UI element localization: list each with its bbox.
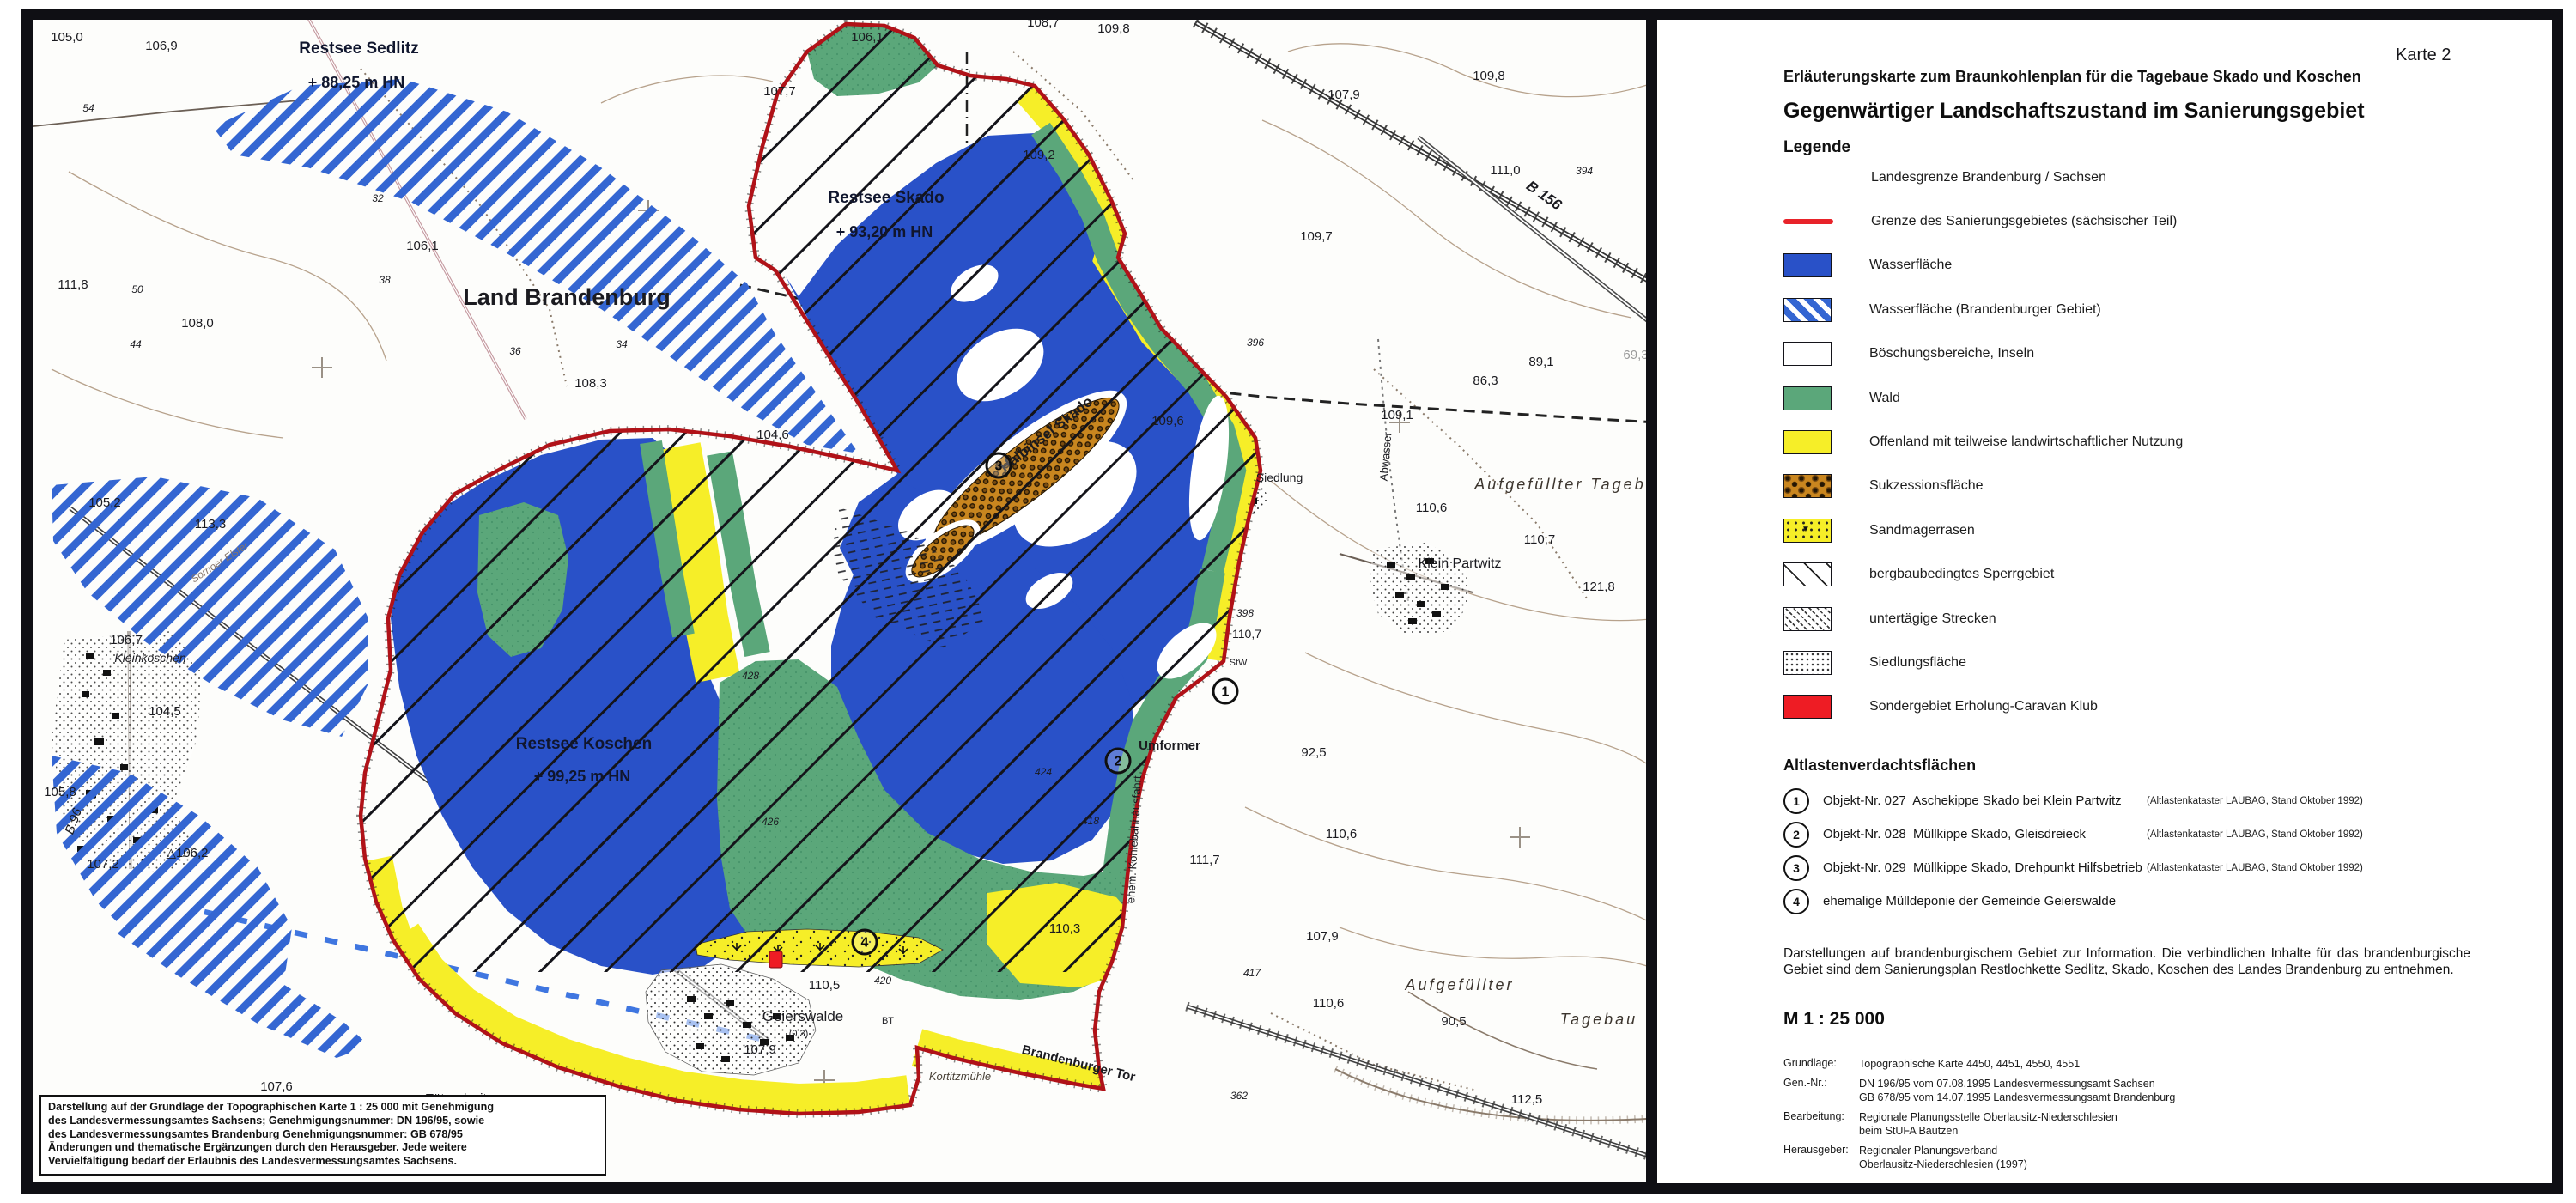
legend-items: Landesgrenze Brandenburg / SachsenGrenze… bbox=[1783, 155, 2522, 729]
legend-item-offenland: Offenland mit teilweise landwirtschaftli… bbox=[1783, 420, 2522, 464]
disclaimer-line: Änderungen und thematische Ergänzungen d… bbox=[48, 1141, 598, 1155]
altlasten-entry-3: 3Objekt-Nr. 029 Müllkippe Skado, Drehpun… bbox=[1783, 851, 2539, 884]
altlasten-entry-text: ehemalige Mülldeponie der Gemeinde Geier… bbox=[1823, 894, 2116, 908]
map-label: Umformer bbox=[1139, 738, 1200, 753]
info-paragraph: Darstellungen auf brandenburgischem Gebi… bbox=[1783, 945, 2470, 978]
map-label: 104,6 bbox=[756, 428, 789, 442]
legend-item-label: Sondergebiet Erholung-Caravan Klub bbox=[1869, 699, 2098, 714]
offenland-swatch-icon bbox=[1783, 430, 1832, 454]
credit-label: Herausgeber: bbox=[1783, 1144, 1859, 1171]
map-label: 108,0 bbox=[181, 316, 214, 331]
map-label: 107,9 bbox=[1306, 929, 1339, 944]
map-label: 107,2 bbox=[87, 857, 119, 872]
map-label: 36 bbox=[509, 345, 521, 357]
svg-text:3: 3 bbox=[995, 459, 1003, 474]
sanierungsgrenze-swatch-icon bbox=[1783, 219, 1833, 224]
legend-item-landesgrenze: Landesgrenze Brandenburg / Sachsen bbox=[1783, 155, 2522, 199]
map-label: Restsee Koschen bbox=[516, 735, 652, 753]
credit-row: Grundlage:Topographische Karte 4450, 445… bbox=[1783, 1057, 2436, 1071]
map-label: 108,7 bbox=[1027, 20, 1060, 30]
wasserflaeche-swatch-icon bbox=[1783, 253, 1832, 277]
map-label: 109,8 bbox=[1097, 21, 1130, 36]
map-label: 50 bbox=[131, 283, 143, 295]
map-label: 106,9 bbox=[145, 39, 178, 53]
map-label: 106,1 bbox=[406, 239, 439, 253]
altlasten-heading: Altlastenverdachtsflächen bbox=[1783, 756, 1976, 775]
map-label: 424 bbox=[1035, 766, 1052, 778]
credit-value: DN 196/95 vom 07.08.1995 Landesvermessun… bbox=[1859, 1077, 2175, 1104]
credit-value: Topographische Karte 4450, 4451, 4550, 4… bbox=[1859, 1057, 2080, 1071]
legend-item-label: Sandmagerrasen bbox=[1869, 523, 1975, 538]
legend-item-label: Grenze des Sanierungsgebietes (sächsisch… bbox=[1871, 214, 2177, 229]
map-label: 90,5 bbox=[1441, 1014, 1466, 1029]
credit-label: Bearbeitung: bbox=[1783, 1110, 1859, 1138]
map-label: 105,0 bbox=[51, 30, 83, 45]
legend-item-siedlung: Siedlungsfläche bbox=[1783, 641, 2522, 684]
map-label: 109,2 bbox=[1023, 148, 1055, 162]
altlasten-entry-text: Objekt-Nr. 027 Aschekippe Skado bei Klei… bbox=[1823, 793, 2122, 808]
map-label: 105,8 bbox=[44, 785, 76, 799]
legend-item-label: Offenland mit teilweise landwirtschaftli… bbox=[1869, 434, 2183, 450]
map-label: 111,8 bbox=[58, 277, 88, 292]
map-label: 426 bbox=[762, 816, 779, 828]
legend-item-label: Siedlungsfläche bbox=[1869, 655, 1966, 671]
map-label: 110,6 bbox=[1416, 501, 1447, 515]
map-label: 398 bbox=[1236, 607, 1254, 619]
map-label: + 93,20 m HN bbox=[836, 223, 933, 240]
credit-label: Grundlage: bbox=[1783, 1057, 1859, 1071]
disclaimer-line: Darstellung auf der Grundlage der Topogr… bbox=[48, 1101, 598, 1115]
credit-value: Regionaler PlanungsverbandOberlausitz-Ni… bbox=[1859, 1144, 2027, 1171]
svg-text:4: 4 bbox=[861, 936, 869, 951]
sperrgebiet-swatch-icon bbox=[1783, 562, 1832, 586]
map-label: 111,0 bbox=[1490, 163, 1520, 178]
map-label: 108,3 bbox=[574, 376, 607, 391]
altlasten-entry-2: 2Objekt-Nr. 028 Müllkippe Skado, Gleisdr… bbox=[1783, 817, 2539, 851]
map-label: Kleinkoschen bbox=[114, 651, 185, 665]
altlasten-entry-note: (Altlastenkataster LAUBAG, Stand Oktober… bbox=[2147, 863, 2363, 873]
map-label: + 99,25 m HN bbox=[534, 768, 631, 785]
map-label: 32 bbox=[372, 192, 384, 204]
map-label: 34 bbox=[616, 338, 628, 350]
map-label: 106,1 bbox=[851, 30, 884, 45]
map-label: 110,7 bbox=[1232, 627, 1261, 641]
sondergebiet-swatch-icon bbox=[1783, 695, 1832, 719]
altlasten-entry-4: 4ehemalige Mülldeponie der Gemeinde Geie… bbox=[1783, 884, 2539, 918]
map-label: + 88,25 m HN bbox=[308, 74, 405, 91]
legend-item-sondergebiet: Sondergebiet Erholung-Caravan Klub bbox=[1783, 685, 2522, 729]
untertaegig-swatch-icon bbox=[1783, 607, 1832, 631]
credit-row: Gen.-Nr.:DN 196/95 vom 07.08.1995 Landes… bbox=[1783, 1077, 2436, 1104]
map-disclaimer-box: Darstellung auf der Grundlage der Topogr… bbox=[39, 1095, 606, 1176]
map-label: 394 bbox=[1576, 165, 1593, 177]
legend-item-label: Sukzessionsfläche bbox=[1869, 478, 1984, 494]
legende-heading: Legende bbox=[1783, 138, 1850, 157]
map-label: 111,7 bbox=[1189, 853, 1219, 867]
map-label: 107,7 bbox=[763, 84, 796, 99]
legend-item-label: bergbaubedingtes Sperrgebiet bbox=[1869, 567, 2054, 582]
legend-item-sukzession: Sukzessionsfläche bbox=[1783, 465, 2522, 508]
map-label: 109,1 bbox=[1381, 408, 1413, 422]
map-label: 86,3 bbox=[1473, 374, 1498, 388]
svg-text:1: 1 bbox=[1222, 685, 1230, 700]
map-label: 107,9 bbox=[1327, 88, 1360, 102]
credit-row: Bearbeitung:Regionale Planungsstelle Obe… bbox=[1783, 1110, 2436, 1138]
map-label: 104,5 bbox=[149, 704, 181, 719]
boeschung-swatch-icon bbox=[1783, 342, 1832, 366]
altlasten-marker-1: 1 bbox=[1213, 679, 1237, 703]
map-label: 396 bbox=[1247, 337, 1264, 349]
wasserflaeche-bb-swatch-icon bbox=[1783, 298, 1832, 322]
disclaimer-line: des Landesvermessungsamtes Sachsens; Gen… bbox=[48, 1115, 598, 1128]
map-label: 362 bbox=[1230, 1090, 1248, 1102]
map-label: 38 bbox=[379, 274, 391, 286]
map-label: 428 bbox=[742, 670, 759, 682]
map-label: 54 bbox=[82, 102, 94, 114]
credits-block: Grundlage:Topographische Karte 4450, 445… bbox=[1783, 1057, 2436, 1177]
map-label: Land Brandenburg bbox=[463, 284, 671, 310]
map-label: 106,7 bbox=[110, 633, 143, 647]
map-title: Gegenwärtiger Landschaftszustand im Sani… bbox=[1783, 99, 2365, 124]
disclaimer-line: Vervielfältigung bedarf der Erlaubnis de… bbox=[48, 1155, 598, 1169]
svg-text:2: 2 bbox=[1115, 755, 1122, 769]
map-label: Kortitzmühle bbox=[929, 1070, 991, 1083]
legend-item-wasserflaeche-bb: Wasserfläche (Brandenburger Gebiet) bbox=[1783, 288, 2522, 331]
map-label: Restsee Skado bbox=[828, 189, 944, 207]
legend-item-wald: Wald bbox=[1783, 376, 2522, 420]
map-label: StW bbox=[1230, 658, 1248, 668]
altlasten-entries: 1Objekt-Nr. 027 Aschekippe Skado bei Kle… bbox=[1783, 784, 2539, 918]
map-label: 110,7 bbox=[1524, 532, 1555, 547]
altlasten-marker-2: 2 bbox=[1106, 749, 1130, 773]
map-canvas: Restsee Sedlitz+ 88,25 m HN105,0106,9541… bbox=[33, 20, 1646, 1182]
credit-label: Gen.-Nr.: bbox=[1783, 1077, 1859, 1104]
altlasten-number-badge: 2 bbox=[1783, 822, 1809, 848]
map-label: Aufgefüllter bbox=[1404, 976, 1514, 993]
map-scale: M 1 : 25 000 bbox=[1783, 1009, 1885, 1030]
credit-row: Herausgeber:Regionaler PlanungsverbandOb… bbox=[1783, 1144, 2436, 1171]
legend-item-untertaegig: untertägige Strecken bbox=[1783, 597, 2522, 641]
map-label: 107,9 bbox=[744, 1042, 776, 1057]
legend-item-label: Böschungsbereiche, Inseln bbox=[1869, 346, 2034, 362]
map-label: 110,6 bbox=[1313, 996, 1344, 1011]
legend-item-label: Landesgrenze Brandenburg / Sachsen bbox=[1871, 170, 2106, 185]
legend-item-boeschung: Böschungsbereiche, Inseln bbox=[1783, 332, 2522, 376]
map-panel: Restsee Sedlitz+ 88,25 m HN105,0106,9541… bbox=[33, 20, 1646, 1182]
map-label: BT bbox=[882, 1016, 894, 1026]
altlasten-entry-text: Objekt-Nr. 028 Müllkippe Skado, Gleisdre… bbox=[1823, 827, 2086, 841]
map-label: 105,2 bbox=[88, 495, 121, 510]
map-label: 109,6 bbox=[1151, 414, 1184, 428]
sukzession-swatch-icon bbox=[1783, 474, 1832, 498]
map-label: Siedlung bbox=[1256, 471, 1303, 484]
map-label: Geierswalde bbox=[762, 1008, 844, 1024]
disclaimer-line: des Landesvermessungsamtes Brandenburg G… bbox=[48, 1128, 598, 1142]
map-label: Tagebau bbox=[1560, 1011, 1637, 1028]
map-label: Aufgefüllter Tagebau bbox=[1473, 476, 1646, 493]
altlasten-number-badge: 1 bbox=[1783, 788, 1809, 814]
map-label: 417 bbox=[1243, 967, 1261, 979]
altlasten-marker-3: 3 bbox=[987, 453, 1011, 477]
legend-item-sperrgebiet: bergbaubedingtes Sperrgebiet bbox=[1783, 553, 2522, 597]
map-label: 109,7 bbox=[1300, 229, 1333, 244]
map-label: 44 bbox=[130, 338, 142, 350]
map-label: △106,2 bbox=[166, 846, 208, 860]
map-label: 110,6 bbox=[1326, 827, 1357, 841]
altlasten-marker-4: 4 bbox=[853, 930, 877, 954]
map-label: 110,5 bbox=[809, 978, 840, 993]
altlasten-entry-text: Objekt-Nr. 029 Müllkippe Skado, Drehpunk… bbox=[1823, 860, 2142, 875]
legend-item-wasserflaeche: Wasserfläche bbox=[1783, 244, 2522, 288]
map-label: 420 bbox=[874, 975, 891, 987]
legend-item-label: Wasserfläche (Brandenburger Gebiet) bbox=[1869, 302, 2101, 318]
wald-swatch-icon bbox=[1783, 386, 1832, 410]
map-label: 109,8 bbox=[1473, 69, 1505, 83]
altlasten-entry-note: (Altlastenkataster LAUBAG, Stand Oktober… bbox=[2147, 829, 2363, 840]
map-label: (0.3) bbox=[789, 1029, 809, 1039]
legend-item-label: untertägige Strecken bbox=[1869, 611, 1996, 627]
map-label: 113,3 bbox=[195, 517, 226, 532]
map-label: 418 bbox=[1082, 815, 1099, 827]
map-label: 89,1 bbox=[1528, 355, 1553, 369]
map-label: 121,8 bbox=[1583, 580, 1615, 594]
map-label: 110,3 bbox=[1049, 921, 1080, 936]
legend-item-label: Wasserfläche bbox=[1869, 258, 1952, 273]
map-sheet: Restsee Sedlitz+ 88,25 m HN105,0106,9541… bbox=[21, 9, 2563, 1194]
legend-item-sanierungsgrenze: Grenze des Sanierungsgebietes (sächsisch… bbox=[1783, 199, 2522, 243]
map-subtitle: Erläuterungskarte zum Braunkohlenplan fü… bbox=[1783, 68, 2361, 86]
legend-panel: Karte 2 Erläuterungskarte zum Braunkohle… bbox=[1657, 20, 2552, 1183]
map-label: Klein Partwitz bbox=[1419, 556, 1502, 571]
altlasten-number-badge: 3 bbox=[1783, 855, 1809, 881]
map-label: 107,6 bbox=[260, 1079, 293, 1094]
credit-value: Regionale Planungsstelle Oberlausitz-Nie… bbox=[1859, 1110, 2117, 1138]
altlasten-entry-1: 1Objekt-Nr. 027 Aschekippe Skado bei Kle… bbox=[1783, 784, 2539, 817]
map-label: Restsee Sedlitz bbox=[299, 39, 418, 58]
legend-item-sandmagerrasen: Sandmagerrasen bbox=[1783, 508, 2522, 552]
sandmagerrasen-swatch-icon bbox=[1783, 519, 1832, 543]
legend-item-label: Wald bbox=[1869, 391, 1900, 406]
map-label: 69,3 bbox=[1623, 348, 1646, 362]
map-label: 112,5 bbox=[1511, 1092, 1542, 1107]
karte-number: Karte 2 bbox=[2396, 46, 2451, 65]
siedlung-swatch-icon bbox=[1783, 651, 1832, 675]
map-label: 92,5 bbox=[1301, 745, 1326, 760]
altlasten-entry-note: (Altlastenkataster LAUBAG, Stand Oktober… bbox=[2147, 796, 2363, 806]
altlasten-number-badge: 4 bbox=[1783, 889, 1809, 914]
